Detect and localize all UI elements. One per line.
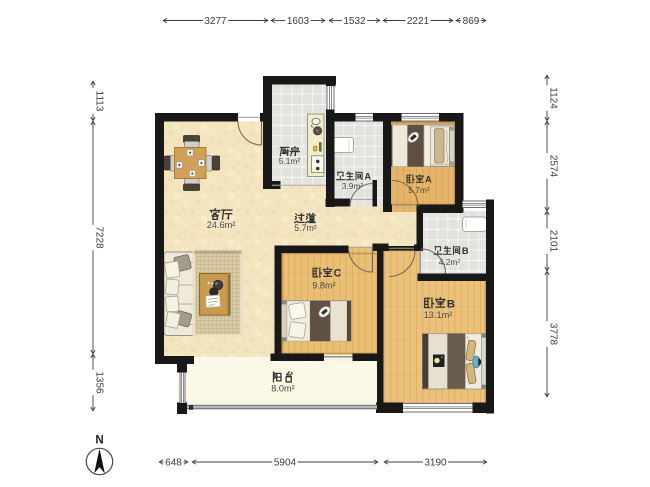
svg-text:24.6m²: 24.6m² — [207, 220, 236, 230]
svg-text:869: 869 — [463, 16, 480, 27]
svg-text:648: 648 — [165, 457, 182, 468]
svg-text:5.7m²: 5.7m² — [294, 223, 317, 233]
svg-text:3778: 3778 — [547, 323, 558, 346]
svg-text:4.2m²: 4.2m² — [439, 257, 461, 267]
svg-text:3190: 3190 — [424, 457, 447, 468]
svg-text:2101: 2101 — [547, 230, 558, 253]
svg-text:13.1m²: 13.1m² — [424, 310, 453, 320]
svg-text:9.8m²: 9.8m² — [312, 281, 336, 291]
svg-text:B: B — [462, 246, 469, 256]
svg-text:N: N — [95, 435, 103, 447]
svg-text:1532: 1532 — [343, 16, 366, 27]
svg-text:2221: 2221 — [407, 16, 430, 27]
svg-text:5.7m²: 5.7m² — [408, 185, 430, 195]
svg-text:1113: 1113 — [93, 91, 104, 112]
svg-text:2574: 2574 — [547, 155, 558, 178]
svg-text:5.1m²: 5.1m² — [279, 156, 301, 166]
svg-text:C: C — [334, 268, 342, 280]
svg-text:8.0m²: 8.0m² — [271, 384, 295, 394]
svg-text:1603: 1603 — [287, 16, 310, 27]
svg-text:3277: 3277 — [204, 16, 227, 27]
svg-text:B: B — [447, 298, 455, 310]
svg-text:7228: 7228 — [93, 226, 104, 249]
svg-text:5904: 5904 — [274, 457, 297, 468]
svg-text:A: A — [364, 172, 371, 182]
svg-text:1356: 1356 — [93, 371, 104, 394]
svg-text:A: A — [425, 175, 432, 185]
svg-text:3.9m²: 3.9m² — [342, 181, 364, 191]
svg-text:1124: 1124 — [547, 87, 558, 109]
